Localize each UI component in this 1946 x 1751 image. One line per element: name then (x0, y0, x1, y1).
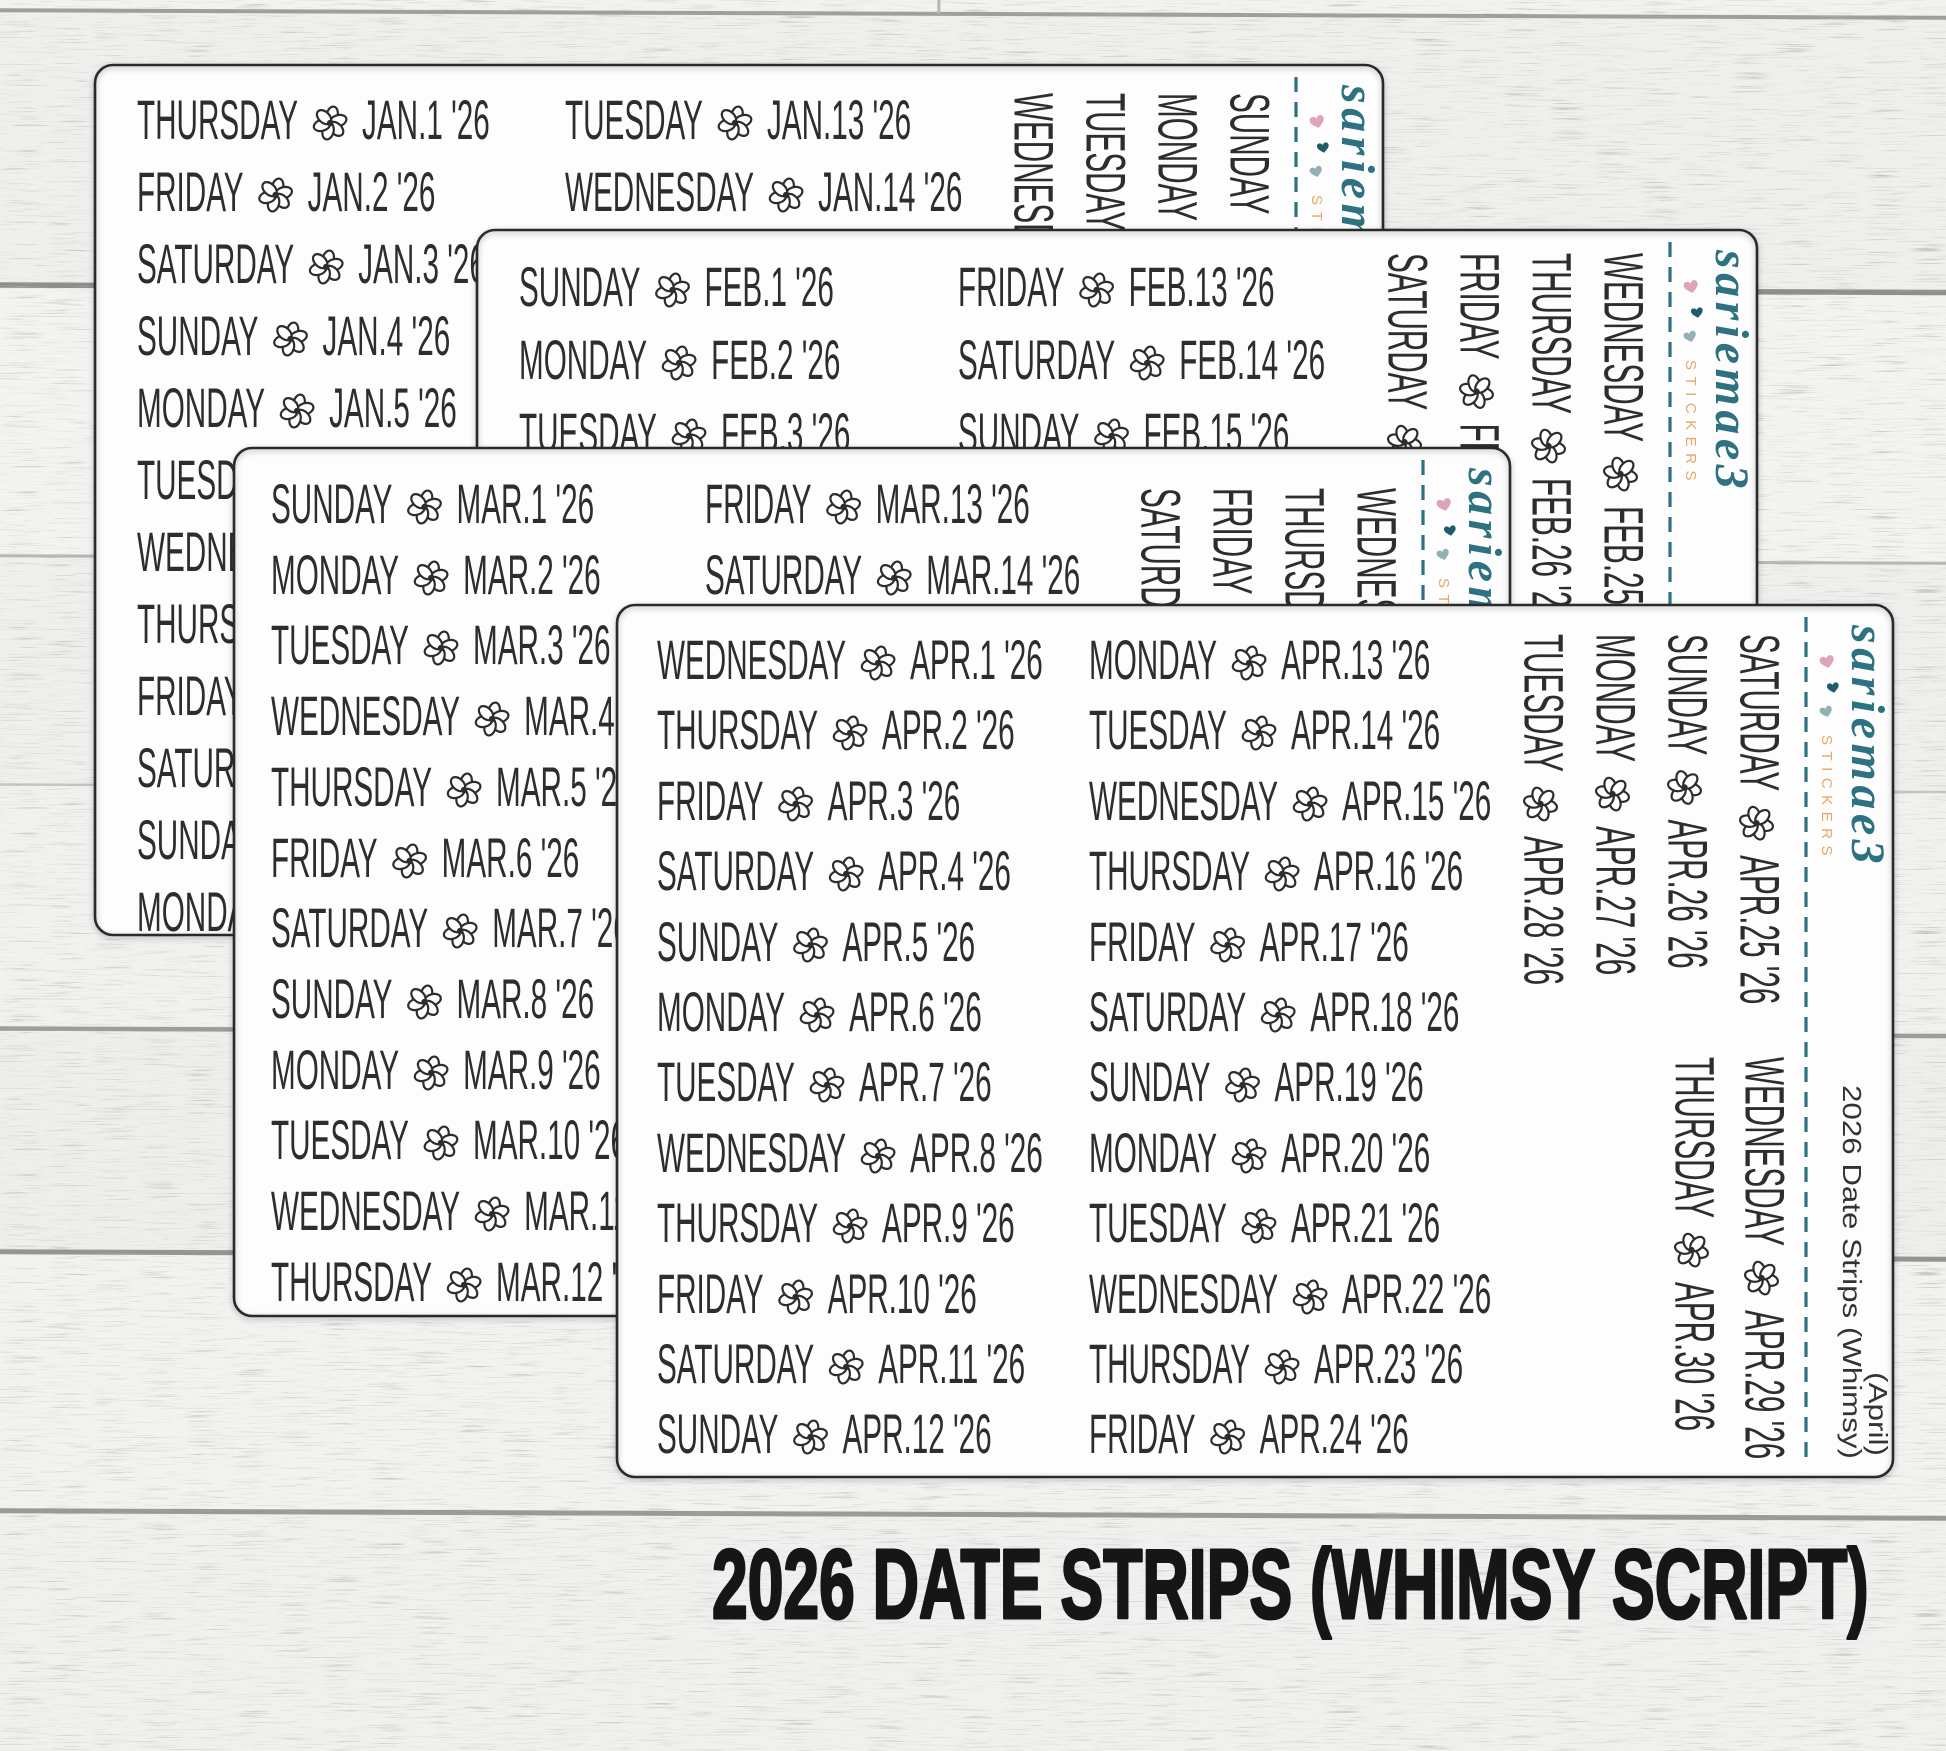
svg-text:APR.11 '26: APR.11 '26 (878, 1333, 1025, 1395)
svg-text:APR.28 '26: APR.28 '26 (1512, 836, 1574, 985)
svg-text:SUNDAY: SUNDAY (1218, 93, 1280, 214)
svg-text:THURSDAY: THURSDAY (1663, 1057, 1725, 1218)
svg-text:SATURDAY: SATURDAY (657, 1333, 814, 1395)
svg-text:APR.13 '26: APR.13 '26 (1281, 629, 1430, 691)
svg-text:MONDAY: MONDAY (1089, 629, 1217, 691)
svg-text:APR.21 '26: APR.21 '26 (1291, 1192, 1440, 1254)
svg-text:THURSDAY: THURSDAY (1520, 253, 1582, 414)
svg-text:MAR.9 '26: MAR.9 '26 (463, 1039, 601, 1101)
svg-text:JAN.13 '26: JAN.13 '26 (767, 89, 911, 151)
svg-text:FRIDAY: FRIDAY (657, 1263, 764, 1325)
svg-text:SUNDAY: SUNDAY (1656, 634, 1718, 755)
svg-text:APR.6 '26: APR.6 '26 (849, 981, 982, 1043)
svg-text:SUNDAY: SUNDAY (657, 1403, 778, 1465)
svg-text:APR.26 '26: APR.26 '26 (1656, 820, 1718, 969)
svg-text:MONDAY: MONDAY (271, 1039, 399, 1101)
svg-text:MAR.6 '26: MAR.6 '26 (442, 827, 580, 889)
svg-text:APR.30 '26: APR.30 '26 (1663, 1282, 1725, 1431)
svg-text:SATURDAY: SATURDAY (1376, 253, 1438, 410)
svg-text:APR.18 '26: APR.18 '26 (1310, 981, 1459, 1043)
svg-text:STICKERS: STICKERS (1818, 735, 1835, 862)
svg-text:WEDNESDAY: WEDNESDAY (1089, 770, 1278, 832)
svg-text:SUNDAY: SUNDAY (271, 968, 392, 1030)
svg-text:APR.15 '26: APR.15 '26 (1342, 770, 1491, 832)
svg-text:WEDNESDAY: WEDNESDAY (657, 629, 846, 691)
svg-text:FRIDAY: FRIDAY (1089, 911, 1196, 973)
svg-text:FEB.14 '26: FEB.14 '26 (1179, 329, 1325, 391)
svg-text:MONDAY: MONDAY (1146, 93, 1208, 221)
svg-text:TUESDAY: TUESDAY (1089, 699, 1227, 761)
svg-text:SATURDAY: SATURDAY (1089, 981, 1246, 1043)
svg-text:FRIDAY: FRIDAY (657, 770, 764, 832)
svg-text:TUESDAY: TUESDAY (271, 1109, 409, 1171)
svg-text:FRIDAY: FRIDAY (271, 827, 378, 889)
svg-text:MONDAY: MONDAY (657, 981, 785, 1043)
svg-text:THURSDAY: THURSDAY (657, 1192, 818, 1254)
svg-text:THURSDAY: THURSDAY (1089, 1333, 1250, 1395)
svg-text:TUESDAY: TUESDAY (565, 89, 703, 151)
svg-text:APR.25 '26: APR.25 '26 (1728, 855, 1790, 1004)
svg-text:APR.24 '26: APR.24 '26 (1260, 1403, 1409, 1465)
svg-text:FRIDAY: FRIDAY (1448, 253, 1510, 360)
svg-text:MAR.8 '26: MAR.8 '26 (457, 968, 595, 1030)
svg-text:SUNDAY: SUNDAY (137, 305, 258, 367)
svg-text:(April): (April) (1863, 1372, 1893, 1456)
svg-text:APR.22 '26: APR.22 '26 (1342, 1263, 1491, 1325)
svg-text:APR.4 '26: APR.4 '26 (878, 840, 1011, 902)
svg-text:APR.7 '26: APR.7 '26 (859, 1051, 992, 1113)
svg-text:FEB.2 '26: FEB.2 '26 (711, 329, 840, 391)
svg-text:SATURDAY: SATURDAY (1728, 634, 1790, 791)
svg-text:JAN.5 '26: JAN.5 '26 (329, 377, 457, 439)
svg-text:MAR.1 '26: MAR.1 '26 (457, 473, 595, 535)
svg-text:SUNDAY: SUNDAY (1089, 1051, 1210, 1113)
svg-text:SUNDAY: SUNDAY (271, 473, 392, 535)
svg-text:MAR.2 '26: MAR.2 '26 (463, 544, 601, 606)
svg-text:APR.29 '26: APR.29 '26 (1733, 1310, 1795, 1459)
svg-text:WEDNESDAY: WEDNESDAY (657, 1122, 846, 1184)
svg-text:TUESDAY: TUESDAY (657, 1051, 795, 1113)
svg-text:APR.1 '26: APR.1 '26 (910, 629, 1043, 691)
svg-text:FEB.26 '26: FEB.26 '26 (1520, 478, 1582, 624)
svg-text:SATURDAY: SATURDAY (271, 897, 428, 959)
svg-text:FRIDAY: FRIDAY (137, 161, 244, 223)
svg-text:sariemae3: sariemae3 (1705, 249, 1758, 493)
svg-text:MONDAY: MONDAY (271, 544, 399, 606)
svg-text:WEDNESDAY: WEDNESDAY (271, 685, 460, 747)
svg-text:FRIDAY: FRIDAY (1201, 488, 1263, 595)
svg-text:2026 DATE STRIPS (WHIMSY SCRIP: 2026 DATE STRIPS (WHIMSY SCRIPT) (712, 1529, 1869, 1639)
svg-text:FRIDAY: FRIDAY (958, 256, 1065, 318)
svg-text:APR.27 '26: APR.27 '26 (1584, 826, 1646, 975)
svg-text:TUESDAY: TUESDAY (1512, 634, 1574, 772)
svg-text:SATURDAY: SATURDAY (137, 233, 294, 295)
svg-text:THURSDAY: THURSDAY (1089, 840, 1250, 902)
svg-text:MAR.10 '26: MAR.10 '26 (473, 1109, 627, 1171)
svg-text:FRIDAY: FRIDAY (137, 665, 244, 727)
svg-text:MAR.7 '26: MAR.7 '26 (492, 897, 630, 959)
svg-text:MONDAY: MONDAY (1584, 634, 1646, 762)
svg-text:SATURDAY: SATURDAY (958, 329, 1115, 391)
svg-text:2026 Date Strips (Whimsy): 2026 Date Strips (Whimsy) (1837, 1085, 1867, 1459)
svg-text:JAN.14 '26: JAN.14 '26 (818, 161, 962, 223)
svg-text:APR.8 '26: APR.8 '26 (910, 1122, 1043, 1184)
svg-text:sariemae3: sariemae3 (1841, 624, 1894, 868)
svg-text:JAN.1 '26: JAN.1 '26 (362, 89, 490, 151)
svg-text:APR.9 '26: APR.9 '26 (882, 1192, 1015, 1254)
svg-text:MONDAY: MONDAY (519, 329, 647, 391)
svg-text:MAR.5 '26: MAR.5 '26 (496, 756, 634, 818)
svg-text:JAN.4 '26: JAN.4 '26 (323, 305, 451, 367)
svg-text:MAR.13 '26: MAR.13 '26 (876, 473, 1030, 535)
svg-text:APR.3 '26: APR.3 '26 (828, 770, 961, 832)
svg-text:APR.2 '26: APR.2 '26 (882, 699, 1015, 761)
svg-text:FRIDAY: FRIDAY (1089, 1403, 1196, 1465)
svg-text:SUNDAY: SUNDAY (657, 911, 778, 973)
svg-text:JAN.3 '26: JAN.3 '26 (358, 233, 486, 295)
svg-text:FRIDAY: FRIDAY (705, 473, 812, 535)
svg-text:WEDNESDAY: WEDNESDAY (565, 161, 754, 223)
svg-text:JAN.2 '26: JAN.2 '26 (308, 161, 436, 223)
svg-text:THURSDAY: THURSDAY (271, 756, 432, 818)
svg-text:MONDAY: MONDAY (137, 377, 265, 439)
svg-text:APR.14 '26: APR.14 '26 (1291, 699, 1440, 761)
svg-text:WEDNESDAY: WEDNESDAY (1089, 1263, 1278, 1325)
svg-text:WEDNESDAY: WEDNESDAY (1592, 253, 1654, 442)
svg-text:APR.10 '26: APR.10 '26 (828, 1263, 977, 1325)
svg-text:APR.23 '26: APR.23 '26 (1314, 1333, 1463, 1395)
svg-text:FEB.13 '26: FEB.13 '26 (1129, 256, 1275, 318)
svg-text:MAR.3 '26: MAR.3 '26 (473, 614, 611, 676)
svg-text:SUNDAY: SUNDAY (519, 256, 640, 318)
svg-text:TUESDAY: TUESDAY (1074, 93, 1136, 231)
svg-text:SATURDAY: SATURDAY (657, 840, 814, 902)
svg-text:FEB.1 '26: FEB.1 '26 (705, 256, 834, 318)
svg-text:STICKERS: STICKERS (1682, 360, 1699, 487)
svg-text:APR.16 '26: APR.16 '26 (1314, 840, 1463, 902)
svg-text:TUESDAY: TUESDAY (271, 614, 409, 676)
svg-text:TUESDAY: TUESDAY (1089, 1192, 1227, 1254)
svg-text:APR.20 '26: APR.20 '26 (1281, 1122, 1430, 1184)
svg-text:THURSDAY: THURSDAY (657, 699, 818, 761)
svg-text:THURSDAY: THURSDAY (271, 1251, 432, 1313)
svg-text:MAR.14 '26: MAR.14 '26 (926, 544, 1080, 606)
svg-text:APR.17 '26: APR.17 '26 (1260, 911, 1409, 973)
svg-text:WEDNESDAY: WEDNESDAY (271, 1180, 460, 1242)
svg-text:THURSDAY: THURSDAY (137, 89, 298, 151)
svg-text:APR.19 '26: APR.19 '26 (1275, 1051, 1424, 1113)
svg-text:APR.12 '26: APR.12 '26 (843, 1403, 992, 1465)
svg-text:WEDNESDAY: WEDNESDAY (1733, 1057, 1795, 1246)
svg-text:SATURDAY: SATURDAY (705, 544, 862, 606)
svg-text:MONDAY: MONDAY (1089, 1122, 1217, 1184)
svg-text:APR.5 '26: APR.5 '26 (843, 911, 976, 973)
